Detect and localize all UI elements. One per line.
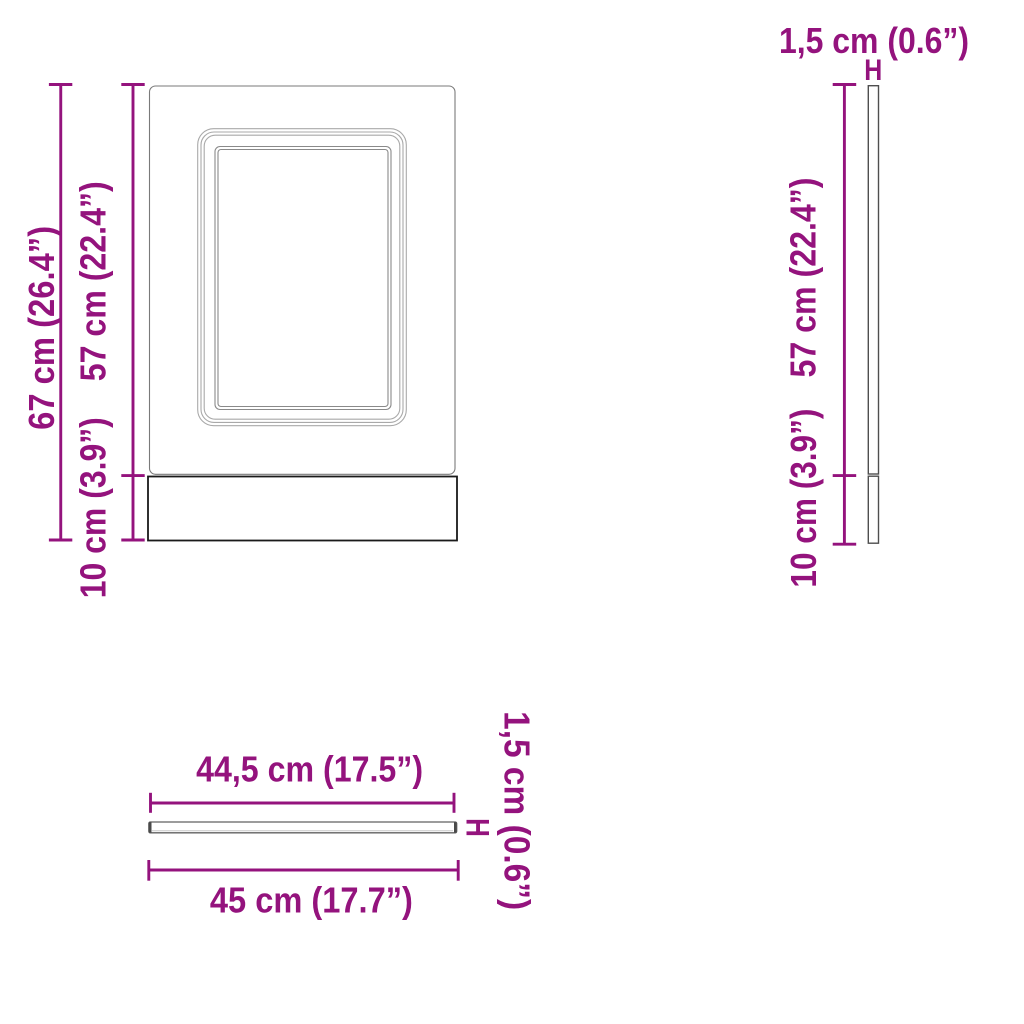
svg-text:67 cm (26.4”): 67 cm (26.4”) <box>21 226 62 430</box>
svg-text:10 cm (3.9”): 10 cm (3.9”) <box>73 417 114 598</box>
svg-text:H: H <box>864 54 882 87</box>
svg-text:45 cm (17.7”): 45 cm (17.7”) <box>210 879 413 920</box>
svg-text:57 cm (22.4”): 57 cm (22.4”) <box>783 178 824 378</box>
svg-text:H: H <box>460 818 497 837</box>
svg-text:44,5 cm (17.5”): 44,5 cm (17.5”) <box>196 749 423 790</box>
svg-text:1,5 cm (0.6”): 1,5 cm (0.6”) <box>497 711 538 910</box>
svg-text:10 cm (3.9”): 10 cm (3.9”) <box>783 409 824 588</box>
svg-text:57 cm (22.4”): 57 cm (22.4”) <box>73 181 114 381</box>
